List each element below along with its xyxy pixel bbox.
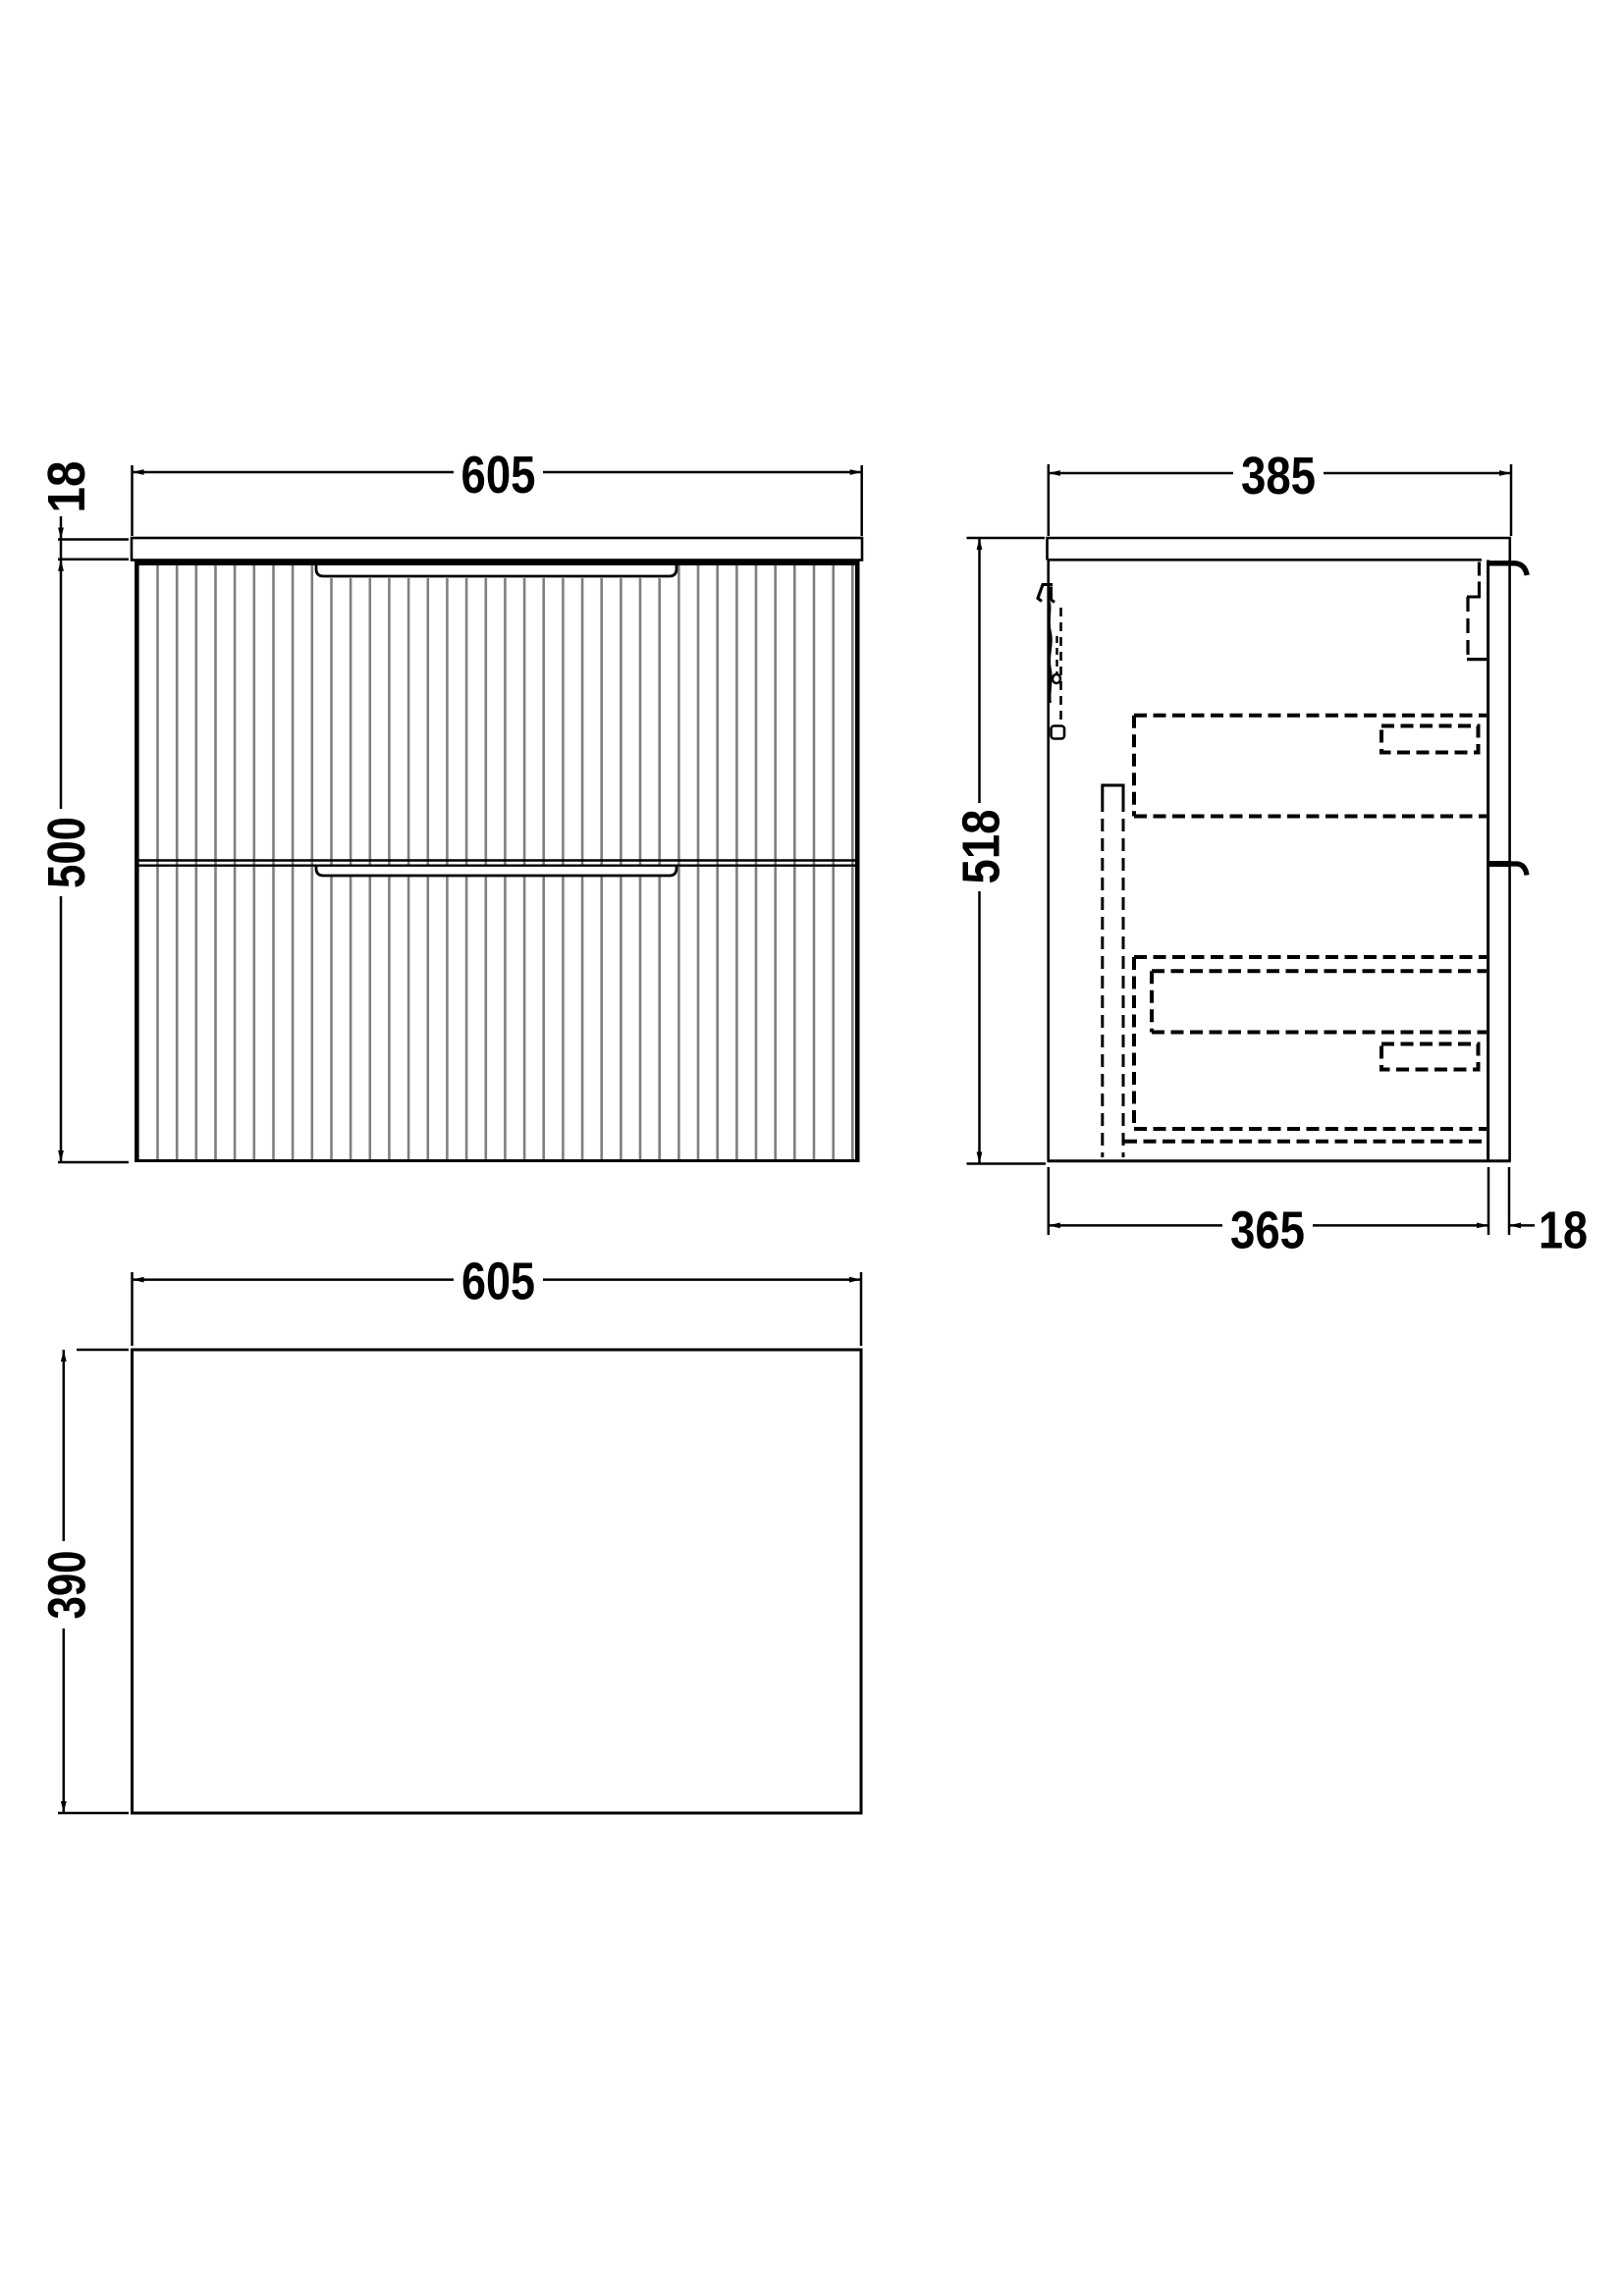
svg-text:518: 518 <box>952 810 1011 884</box>
svg-text:605: 605 <box>461 1253 535 1311</box>
svg-text:605: 605 <box>461 446 536 505</box>
svg-text:18: 18 <box>1539 1201 1588 1260</box>
svg-text:18: 18 <box>37 461 96 513</box>
svg-text:365: 365 <box>1230 1201 1305 1260</box>
svg-text:390: 390 <box>37 1551 96 1620</box>
svg-text:385: 385 <box>1241 447 1316 506</box>
svg-text:500: 500 <box>37 817 96 888</box>
